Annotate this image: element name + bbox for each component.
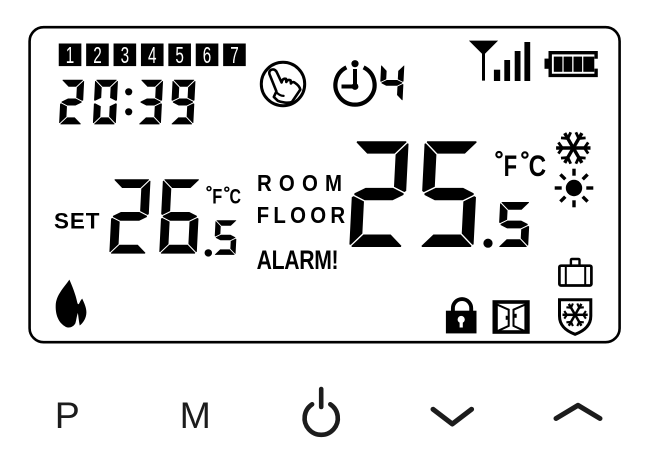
- svg-text:6: 6: [203, 42, 212, 68]
- svg-text:2: 2: [93, 42, 102, 68]
- svg-text:4: 4: [148, 42, 157, 68]
- svg-text:F: F: [504, 150, 517, 183]
- svg-text:C: C: [529, 150, 547, 183]
- svg-text:C: C: [230, 185, 242, 208]
- svg-text:FLOOR: FLOOR: [257, 202, 346, 229]
- svg-text:1: 1: [66, 42, 75, 68]
- svg-text:7: 7: [230, 42, 239, 68]
- svg-text:F: F: [212, 185, 222, 208]
- svg-text:5: 5: [175, 42, 184, 68]
- svg-text:SET: SET: [54, 208, 100, 233]
- svg-text:P: P: [55, 394, 80, 436]
- svg-text:ALARM!: ALARM!: [257, 246, 339, 276]
- svg-text:ROOM: ROOM: [257, 170, 342, 197]
- svg-text:3: 3: [121, 42, 130, 68]
- svg-text:M: M: [180, 394, 211, 436]
